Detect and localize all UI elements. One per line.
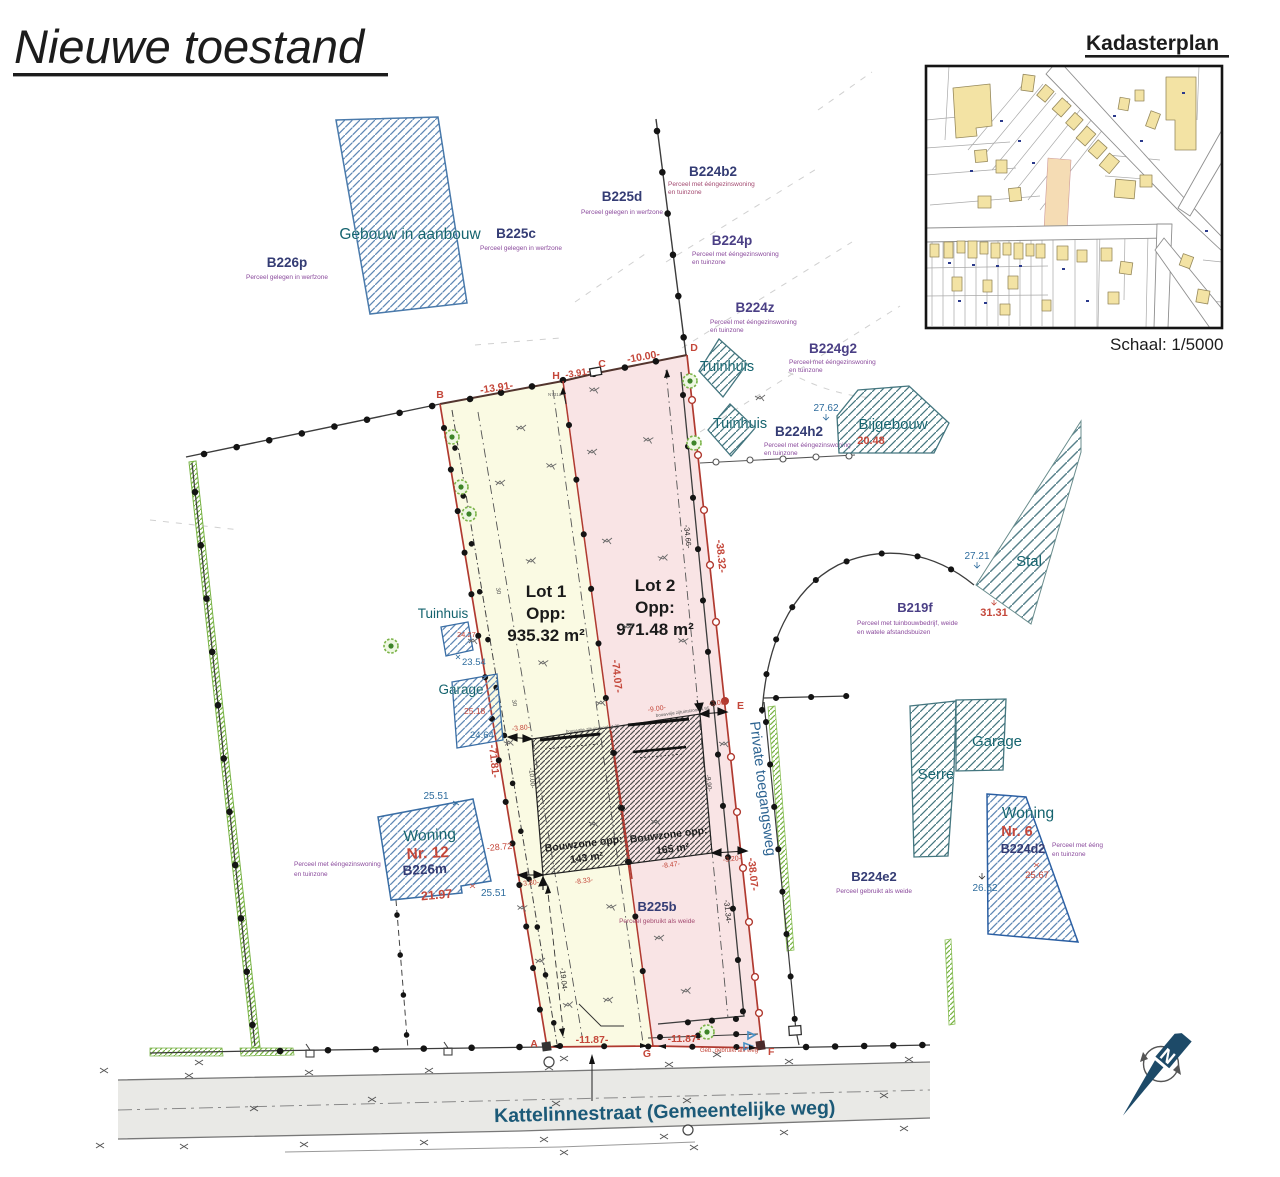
svg-text:Bijgebouw: Bijgebouw — [858, 416, 927, 433]
svg-text:Perceel gebruikt als weide: Perceel gebruikt als weide — [619, 918, 695, 925]
svg-text:25.67: 25.67 — [1025, 870, 1049, 881]
svg-text:21.97: 21.97 — [420, 887, 452, 904]
svg-text:20.48: 20.48 — [857, 435, 885, 447]
svg-text:Perceel met ééng: Perceel met ééng — [1052, 842, 1103, 849]
svg-text:B225c: B225c — [496, 226, 536, 241]
svg-text:Nr. 6: Nr. 6 — [1001, 824, 1032, 840]
svg-text:26.62: 26.62 — [972, 883, 997, 894]
svg-text:Perceel met ééngezinswoning: Perceel met ééngezinswoning — [789, 359, 876, 366]
svg-text:en tuinzone: en tuinzone — [668, 189, 702, 196]
svg-text:D: D — [690, 342, 698, 354]
svg-text:B224z: B224z — [735, 300, 774, 315]
svg-text:25.18: 25.18 — [464, 706, 486, 716]
svg-text:Perceel gelegen in werfzone: Perceel gelegen in werfzone — [246, 274, 328, 281]
svg-text:Tuinhuis: Tuinhuis — [418, 606, 469, 621]
svg-text:B226m: B226m — [402, 861, 447, 878]
svg-text:Woning: Woning — [403, 826, 456, 846]
svg-text:Opp:: Opp: — [635, 598, 675, 617]
svg-text:31.31: 31.31 — [980, 607, 1008, 619]
svg-text:en watele afstandsbuizen: en watele afstandsbuizen — [857, 629, 931, 636]
svg-text:E: E — [737, 700, 744, 712]
svg-text:27.21: 27.21 — [964, 551, 989, 562]
svg-text:Perceel met ééngezinswoning: Perceel met ééngezinswoning — [692, 251, 779, 258]
svg-text:25.51: 25.51 — [423, 791, 448, 802]
svg-text:B224h2: B224h2 — [775, 424, 823, 439]
svg-text:-11.87-: -11.87- — [576, 1034, 609, 1046]
svg-text:Nieuwe toestand: Nieuwe toestand — [14, 20, 366, 73]
svg-text:B224d2: B224d2 — [1001, 842, 1046, 856]
svg-text:en tuinzone: en tuinzone — [710, 327, 744, 334]
svg-text:B226p: B226p — [267, 255, 308, 270]
svg-text:Perceel gebruikt als weide: Perceel gebruikt als weide — [836, 888, 912, 895]
svg-text:Garage: Garage — [438, 682, 483, 697]
svg-text:Perceel met ééngezinswoning: Perceel met ééngezinswoning — [668, 181, 755, 188]
svg-text:Perceel met tuinbouwbedrijf, w: Perceel met tuinbouwbedrijf, weide — [857, 620, 958, 627]
svg-text:B225b: B225b — [637, 899, 676, 914]
svg-text:-11.87-: -11.87- — [668, 1033, 701, 1045]
svg-text:23.54: 23.54 — [462, 657, 486, 668]
svg-text:Tuinhuis: Tuinhuis — [713, 416, 767, 432]
svg-text:27.62: 27.62 — [813, 403, 838, 414]
svg-text:H: H — [552, 370, 560, 382]
svg-text:B224g2: B224g2 — [809, 341, 857, 356]
svg-text:C: C — [598, 358, 606, 370]
svg-text:A: A — [530, 1038, 538, 1050]
svg-text:Woning: Woning — [1002, 805, 1054, 822]
svg-text:B219f: B219f — [897, 600, 933, 615]
svg-text:B: B — [436, 389, 444, 401]
svg-text:Garage: Garage — [972, 733, 1022, 750]
svg-text:B224p: B224p — [712, 233, 753, 248]
svg-text:Lot 1: Lot 1 — [526, 582, 567, 601]
svg-text:B224b2: B224b2 — [689, 164, 737, 179]
svg-text:Schaal: 1/5000: Schaal: 1/5000 — [1110, 335, 1223, 354]
svg-text:Perceel met ééngezinswoning: Perceel met ééngezinswoning — [294, 861, 381, 868]
svg-text:Lot 2: Lot 2 — [635, 576, 676, 595]
svg-text:Serre: Serre — [918, 766, 955, 783]
svg-text:25.51: 25.51 — [481, 888, 506, 899]
svg-text:Opp:: Opp: — [526, 604, 566, 623]
svg-text:Perceel gelegen in werfzone: Perceel gelegen in werfzone — [581, 209, 663, 216]
svg-text:N731a: N731a — [548, 392, 562, 397]
svg-text:24.27: 24.27 — [457, 630, 476, 639]
svg-text:en tuinzone: en tuinzone — [1052, 851, 1086, 858]
svg-text:B225d: B225d — [602, 189, 643, 204]
svg-text:en tuinzone: en tuinzone — [764, 450, 798, 457]
svg-text:Perceel gelegen in werfzone: Perceel gelegen in werfzone — [480, 245, 562, 252]
svg-text:Tuinhuis: Tuinhuis — [700, 359, 754, 375]
svg-text:Kadasterplan: Kadasterplan — [1086, 32, 1219, 55]
svg-text:935.32 m²: 935.32 m² — [507, 626, 585, 645]
svg-text:F: F — [768, 1046, 775, 1058]
svg-text:Stal: Stal — [1016, 553, 1042, 570]
svg-text:en tuinzone: en tuinzone — [789, 367, 823, 374]
svg-text:971.48 m²: 971.48 m² — [616, 620, 694, 639]
svg-text:Gebouw in aanbouw: Gebouw in aanbouw — [339, 226, 481, 243]
svg-text:Perceel met ééngezinswoning: Perceel met ééngezinswoning — [710, 319, 797, 326]
svg-text:B224e2: B224e2 — [851, 869, 897, 884]
svg-text:24.64: 24.64 — [470, 730, 494, 741]
svg-text:en tuinzone: en tuinzone — [294, 871, 328, 878]
svg-text:G: G — [643, 1048, 651, 1060]
svg-text:en tuinzone: en tuinzone — [692, 259, 726, 266]
